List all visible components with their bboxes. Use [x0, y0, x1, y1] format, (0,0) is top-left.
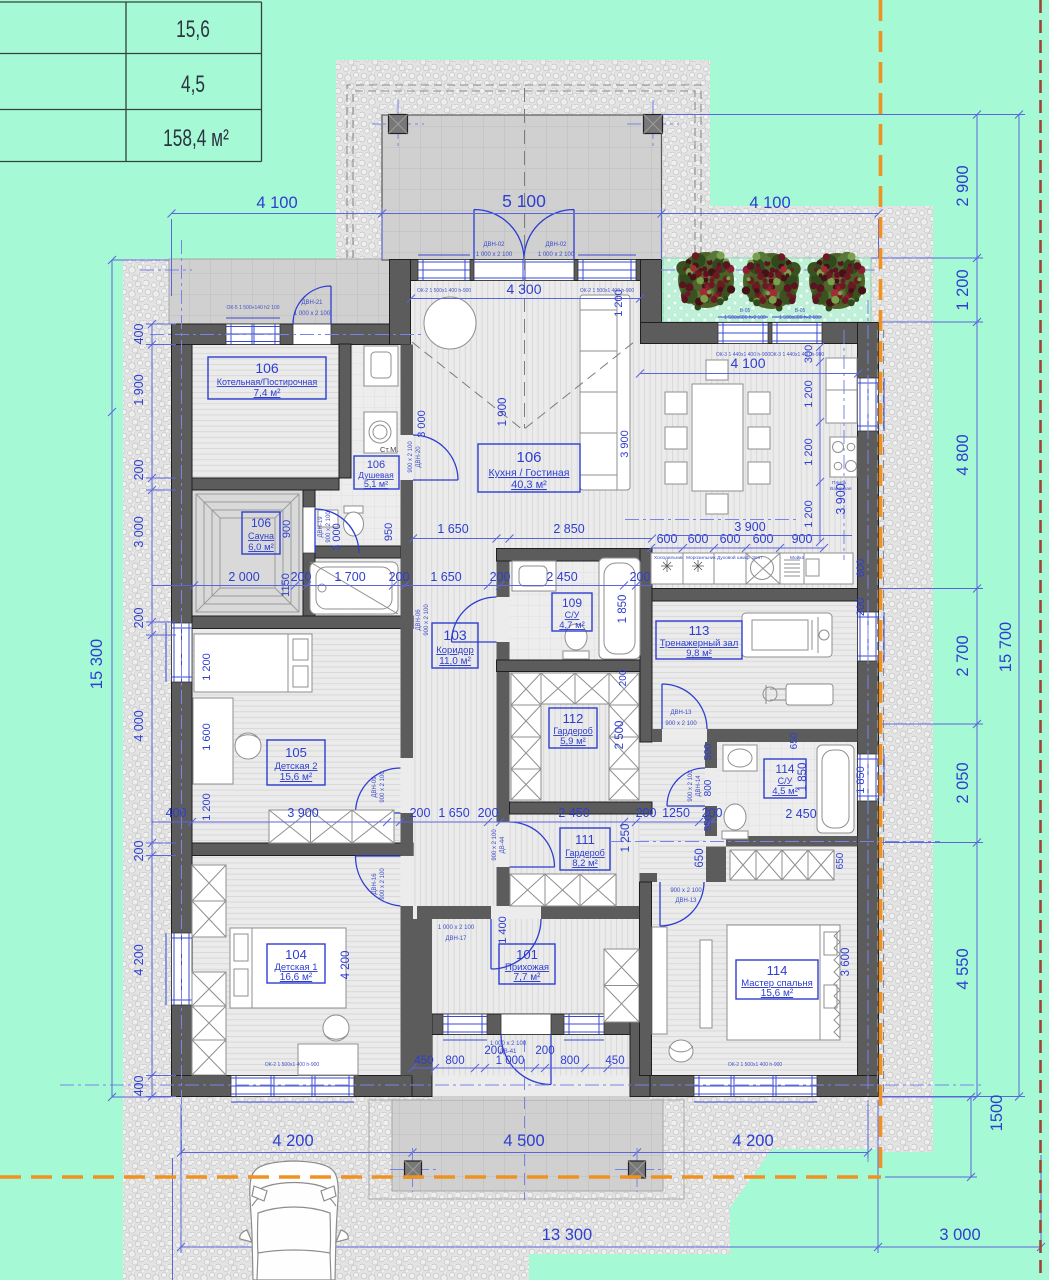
svg-text:4 300: 4 300 [506, 281, 541, 297]
svg-text:900 х 2 100: 900 х 2 100 [424, 604, 430, 636]
svg-text:2 850: 2 850 [553, 522, 584, 536]
svg-text:2 450: 2 450 [558, 806, 589, 820]
svg-text:15,6 м²: 15,6 м² [280, 772, 313, 783]
svg-text:ДВН-06: ДВН-06 [416, 609, 422, 631]
svg-text:103: 103 [443, 627, 467, 643]
svg-text:3 000: 3 000 [939, 1226, 980, 1244]
svg-text:16,6 м²: 16,6 м² [280, 972, 313, 983]
svg-text:Сауна: Сауна [248, 531, 274, 541]
svg-text:800: 800 [445, 1055, 464, 1067]
svg-text:1 000 х 2 100: 1 000 х 2 100 [538, 252, 575, 258]
svg-text:1 000 х 2 100: 1 000 х 2 100 [294, 311, 331, 317]
svg-text:600: 600 [657, 532, 678, 546]
svg-text:900 х 2 100: 900 х 2 100 [492, 829, 498, 861]
svg-text:2 050: 2 050 [954, 762, 972, 803]
svg-text:200: 200 [132, 608, 146, 629]
svg-text:9,8 м²: 9,8 м² [686, 648, 712, 659]
svg-text:1 650: 1 650 [430, 570, 461, 584]
svg-text:106: 106 [251, 516, 271, 530]
svg-text:800: 800 [560, 1055, 579, 1067]
svg-text:1250: 1250 [662, 806, 690, 820]
svg-text:1 650: 1 650 [438, 806, 469, 820]
svg-text:600: 600 [688, 532, 709, 546]
svg-text:ДВ-44: ДВ-44 [500, 836, 506, 853]
svg-text:900 х 2 100: 900 х 2 100 [380, 771, 386, 803]
svg-text:200: 200 [535, 1045, 554, 1057]
svg-text:1 200: 1 200 [803, 380, 815, 408]
svg-text:1 200: 1 200 [803, 500, 815, 528]
svg-text:900 х 2 100: 900 х 2 100 [326, 511, 332, 543]
svg-text:15,6 м²: 15,6 м² [761, 988, 794, 999]
svg-text:4 550: 4 550 [954, 948, 972, 989]
svg-text:13 300: 13 300 [542, 1226, 592, 1244]
svg-text:1 200: 1 200 [954, 269, 972, 310]
svg-text:1 200: 1 200 [803, 438, 815, 466]
svg-text:900: 900 [792, 532, 813, 546]
svg-text:200: 200 [132, 841, 146, 862]
svg-text:Варочная: Варочная [830, 486, 852, 492]
svg-text:1500: 1500 [988, 1095, 1006, 1132]
svg-text:Холодильник: Холодильник [654, 555, 684, 561]
svg-text:600: 600 [855, 559, 867, 577]
svg-text:950: 950 [383, 523, 395, 541]
svg-text:3 000: 3 000 [331, 523, 343, 551]
svg-text:4 200: 4 200 [132, 944, 146, 975]
svg-text:4 100: 4 100 [256, 194, 297, 212]
svg-text:Духовой шкаф: Духовой шкаф [717, 554, 750, 561]
svg-text:3 600: 3 600 [840, 948, 852, 977]
svg-text:400: 400 [132, 1076, 146, 1097]
svg-text:ДВН-19: ДВН-19 [318, 516, 324, 538]
svg-text:2 450: 2 450 [546, 570, 577, 584]
svg-text:15,6: 15,6 [176, 16, 210, 42]
svg-text:900 х 2 100: 900 х 2 100 [688, 770, 694, 802]
svg-text:500: 500 [703, 743, 714, 760]
svg-text:109: 109 [562, 596, 582, 610]
svg-text:7,7 м²: 7,7 м² [514, 972, 542, 983]
svg-text:ДВ-41: ДВ-41 [500, 1049, 517, 1055]
svg-text:1 000 х 2 100: 1 000 х 2 100 [490, 1041, 527, 1047]
svg-text:3 900: 3 900 [734, 520, 765, 534]
svg-text:3 900: 3 900 [287, 806, 318, 820]
svg-text:1 400: 1 400 [497, 916, 509, 944]
svg-text:ОК-2 1 500х1 400 h-900: ОК-2 1 500х1 400 h-900 [580, 288, 635, 294]
svg-text:5,9 м²: 5,9 м² [560, 736, 586, 747]
svg-text:650: 650 [835, 852, 846, 869]
svg-text:106: 106 [255, 360, 279, 376]
svg-text:200: 200 [478, 806, 499, 820]
svg-text:1 900: 1 900 [132, 374, 146, 405]
svg-text:Котельная/Постирочная: Котельная/Постирочная [217, 377, 318, 387]
svg-text:Плита: Плита [832, 480, 846, 486]
svg-text:1 650: 1 650 [437, 522, 468, 536]
svg-text:Гардероб: Гардероб [565, 848, 605, 858]
svg-text:15 300: 15 300 [88, 639, 106, 689]
svg-text:8,2 м²: 8,2 м² [572, 858, 598, 869]
svg-text:1 250: 1 250 [620, 824, 632, 853]
svg-text:105: 105 [285, 745, 307, 760]
svg-text:200: 200 [630, 570, 651, 584]
svg-text:4 200: 4 200 [340, 951, 352, 980]
svg-text:4 200: 4 200 [732, 1132, 773, 1150]
svg-text:200: 200 [855, 598, 867, 616]
svg-text:1 200: 1 200 [201, 653, 213, 681]
svg-text:1 900: 1 900 [497, 398, 509, 427]
svg-text:Коридор: Коридор [436, 645, 474, 656]
svg-text:С/У: С/У [778, 776, 793, 786]
svg-text:1150: 1150 [280, 573, 292, 597]
svg-text:101: 101 [516, 947, 538, 962]
svg-text:200: 200 [490, 570, 511, 584]
svg-text:1 200: 1 200 [201, 793, 213, 821]
svg-text:600: 600 [753, 532, 774, 546]
svg-text:ОК-2 1 500х1 400 h-900: ОК-2 1 500х1 400 h-900 [417, 288, 472, 294]
svg-text:Кухня / Гостиная: Кухня / Гостиная [489, 467, 570, 479]
svg-text:1 700: 1 700 [334, 570, 365, 584]
svg-text:111: 111 [575, 832, 595, 847]
svg-text:4,5 м²: 4,5 м² [772, 786, 798, 797]
svg-text:114: 114 [767, 963, 788, 978]
svg-text:2 700: 2 700 [954, 635, 972, 676]
svg-text:900 х 2 100: 900 х 2 100 [380, 868, 386, 900]
svg-text:ДВН-09: ДВН-09 [372, 776, 378, 798]
svg-text:200: 200 [636, 806, 657, 820]
svg-text:600: 600 [720, 532, 741, 546]
svg-text:400: 400 [166, 806, 187, 820]
svg-text:158,4 м²: 158,4 м² [163, 125, 229, 151]
svg-text:11,0 м²: 11,0 м² [439, 656, 471, 667]
svg-text:ОК-2 1 500х1 400 h-900: ОК-2 1 500х1 400 h-900 [265, 1062, 320, 1068]
svg-text:ДВН-14: ДВН-14 [696, 775, 702, 797]
svg-text:800: 800 [703, 779, 714, 796]
svg-text:200: 200 [618, 669, 629, 686]
svg-text:Мойка: Мойка [790, 554, 805, 561]
svg-text:ДВН-21: ДВН-21 [301, 300, 323, 306]
svg-text:1 500х600 h-2 100: 1 500х600 h-2 100 [779, 315, 821, 321]
svg-text:1 500х600 h-2 100: 1 500х600 h-2 100 [724, 315, 766, 321]
svg-text:ДВН-02: ДВН-02 [545, 242, 567, 248]
svg-text:ДВН-16: ДВН-16 [372, 873, 378, 895]
svg-text:4 800: 4 800 [954, 434, 972, 475]
svg-text:200: 200 [389, 570, 410, 584]
svg-text:2 900: 2 900 [954, 165, 972, 206]
svg-text:1 850: 1 850 [617, 595, 629, 624]
svg-text:ДВН-13: ДВН-13 [675, 898, 697, 904]
svg-text:ДВН-17: ДВН-17 [445, 936, 467, 942]
svg-text:200: 200 [410, 806, 431, 820]
svg-text:4,7 м²: 4,7 м² [559, 620, 585, 631]
svg-text:550: 550 [703, 814, 714, 831]
svg-text:ОК-3 1 440х1 400 h-900: ОК-3 1 440х1 400 h-900 [770, 352, 825, 358]
svg-text:1 000: 1 000 [496, 1055, 525, 1067]
svg-text:В-05: В-05 [740, 308, 751, 314]
svg-text:1 000 х 2 100: 1 000 х 2 100 [438, 925, 475, 931]
svg-text:3 900: 3 900 [619, 430, 631, 458]
svg-text:Гардероб: Гардероб [553, 726, 593, 736]
svg-text:650: 650 [789, 732, 800, 749]
svg-text:ОК-2 1 500х1 400 h-900: ОК-2 1 500х1 400 h-900 [728, 1062, 783, 1068]
svg-text:40,3 м²: 40,3 м² [511, 479, 547, 491]
svg-text:4 000: 4 000 [132, 710, 146, 741]
svg-text:2 450: 2 450 [785, 807, 816, 821]
svg-text:5,1 м²: 5,1 м² [364, 479, 388, 489]
svg-text:3 000: 3 000 [416, 410, 428, 438]
svg-text:900 х 2 100: 900 х 2 100 [665, 721, 697, 727]
svg-text:1 850: 1 850 [855, 766, 867, 794]
svg-text:ОК-5 1 500+140 h2 100: ОК-5 1 500+140 h2 100 [226, 305, 279, 311]
svg-text:В-05: В-05 [795, 308, 806, 314]
svg-text:6,0 м²: 6,0 м² [248, 542, 274, 553]
svg-text:4 200: 4 200 [272, 1132, 313, 1150]
svg-text:113: 113 [689, 623, 710, 638]
svg-text:ДВН-20: ДВН-20 [416, 446, 422, 468]
svg-text:900: 900 [281, 520, 293, 538]
svg-text:ДВН-13: ДВН-13 [670, 710, 692, 716]
svg-text:650: 650 [694, 848, 706, 867]
svg-text:2 500: 2 500 [614, 721, 626, 750]
svg-text:4,5: 4,5 [181, 71, 205, 97]
svg-text:104: 104 [285, 947, 307, 962]
svg-text:4 100: 4 100 [749, 194, 790, 212]
svg-text:900 х 2 100: 900 х 2 100 [670, 888, 702, 894]
svg-text:114: 114 [775, 762, 794, 776]
svg-text:1 000 х 2 100: 1 000 х 2 100 [476, 252, 513, 258]
svg-text:Ст.М.: Ст.М. [380, 445, 398, 454]
svg-text:Зонт: Зонт [752, 555, 763, 561]
svg-text:900 х 2 100: 900 х 2 100 [408, 441, 414, 473]
svg-text:ОК-3 1 440х1 400 h-900: ОК-3 1 440х1 400 h-900 [716, 352, 771, 358]
svg-text:С/У: С/У [565, 610, 580, 620]
svg-text:ДВН-02: ДВН-02 [483, 242, 505, 248]
svg-text:200: 200 [132, 460, 146, 481]
svg-text:1 850: 1 850 [797, 763, 809, 792]
svg-text:400: 400 [132, 324, 146, 345]
svg-text:1 600: 1 600 [201, 723, 213, 751]
svg-text:106: 106 [516, 449, 541, 466]
svg-text:450: 450 [414, 1055, 433, 1067]
svg-text:15 700: 15 700 [997, 622, 1015, 672]
svg-text:5 100: 5 100 [502, 191, 546, 211]
svg-text:2 000: 2 000 [228, 570, 259, 584]
svg-text:200: 200 [291, 570, 312, 584]
svg-text:4 500: 4 500 [503, 1132, 544, 1150]
svg-text:7,4 м²: 7,4 м² [254, 388, 282, 399]
svg-text:Детская 2: Детская 2 [274, 761, 317, 772]
svg-text:Морозильник: Морозильник [686, 555, 717, 561]
svg-text:3 000: 3 000 [132, 516, 146, 547]
svg-text:112: 112 [563, 711, 584, 726]
svg-text:450: 450 [605, 1055, 624, 1067]
